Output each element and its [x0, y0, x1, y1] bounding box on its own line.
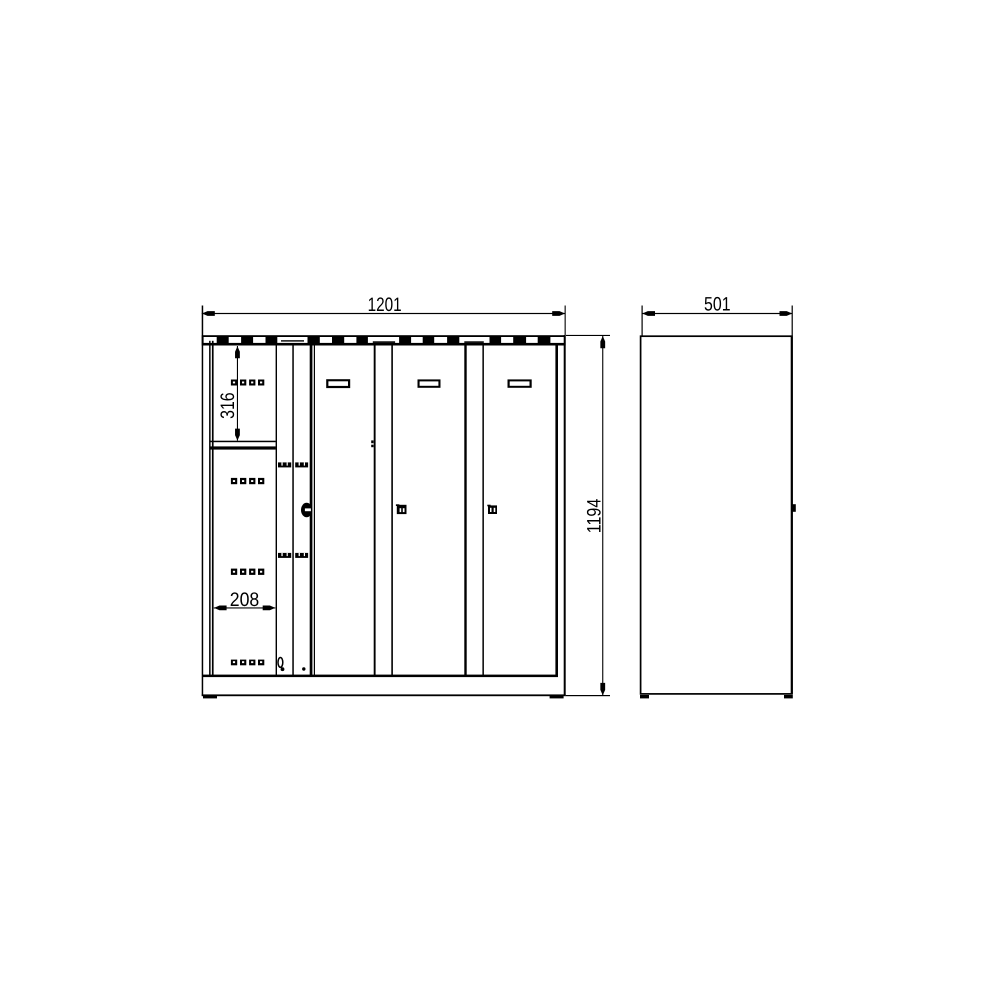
- svg-text:208: 208: [230, 589, 260, 611]
- svg-text:501: 501: [704, 294, 731, 316]
- svg-text:316: 316: [217, 392, 239, 419]
- svg-text:1194: 1194: [584, 499, 606, 534]
- svg-text:1201: 1201: [368, 294, 402, 316]
